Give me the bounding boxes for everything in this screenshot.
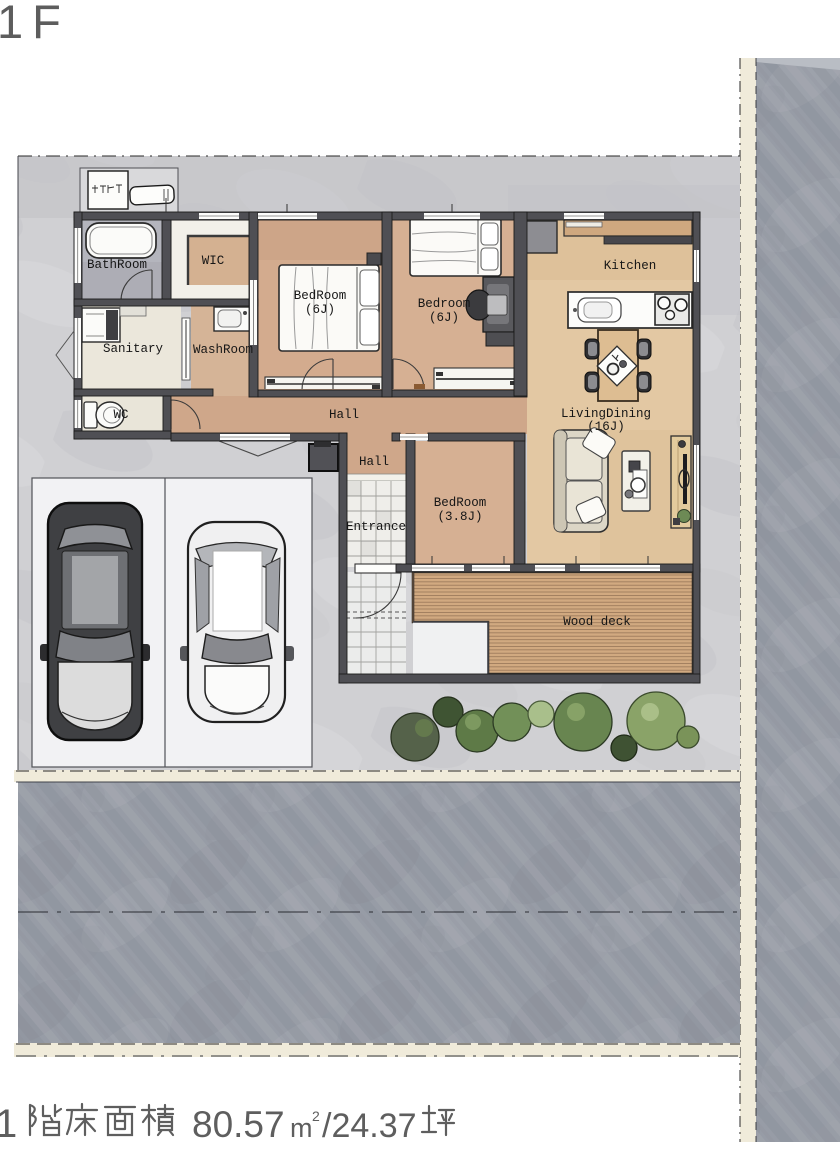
svg-text:Sanitary: Sanitary [103,342,164,356]
svg-text:80.57: 80.57 [192,1104,285,1145]
svg-text:Hall: Hall [359,455,389,469]
svg-text:Kitchen: Kitchen [604,259,657,273]
svg-text:WC: WC [113,408,128,422]
svg-text:BedRoom: BedRoom [294,289,347,303]
svg-text:WashRoom: WashRoom [193,343,253,357]
svg-text:2: 2 [312,1108,320,1124]
svg-text:m: m [290,1113,313,1143]
svg-text:(16J): (16J) [587,420,625,434]
svg-text:LivingDining: LivingDining [561,407,651,421]
svg-text:Hall: Hall [329,408,359,422]
svg-text:(3.8J): (3.8J) [437,510,482,524]
svg-text:/24.37: /24.37 [322,1107,417,1145]
svg-text:1: 1 [0,1102,17,1146]
svg-text:BedRoom: BedRoom [434,496,487,510]
svg-text:Entrance: Entrance [346,520,406,534]
svg-text:(6J): (6J) [429,311,459,325]
svg-text:Bedroom: Bedroom [418,297,471,311]
svg-text:BathRoom: BathRoom [87,258,147,272]
svg-text:WIC: WIC [202,254,225,268]
svg-text:(6J): (6J) [305,303,335,317]
svg-text:Wood deck: Wood deck [563,615,631,629]
